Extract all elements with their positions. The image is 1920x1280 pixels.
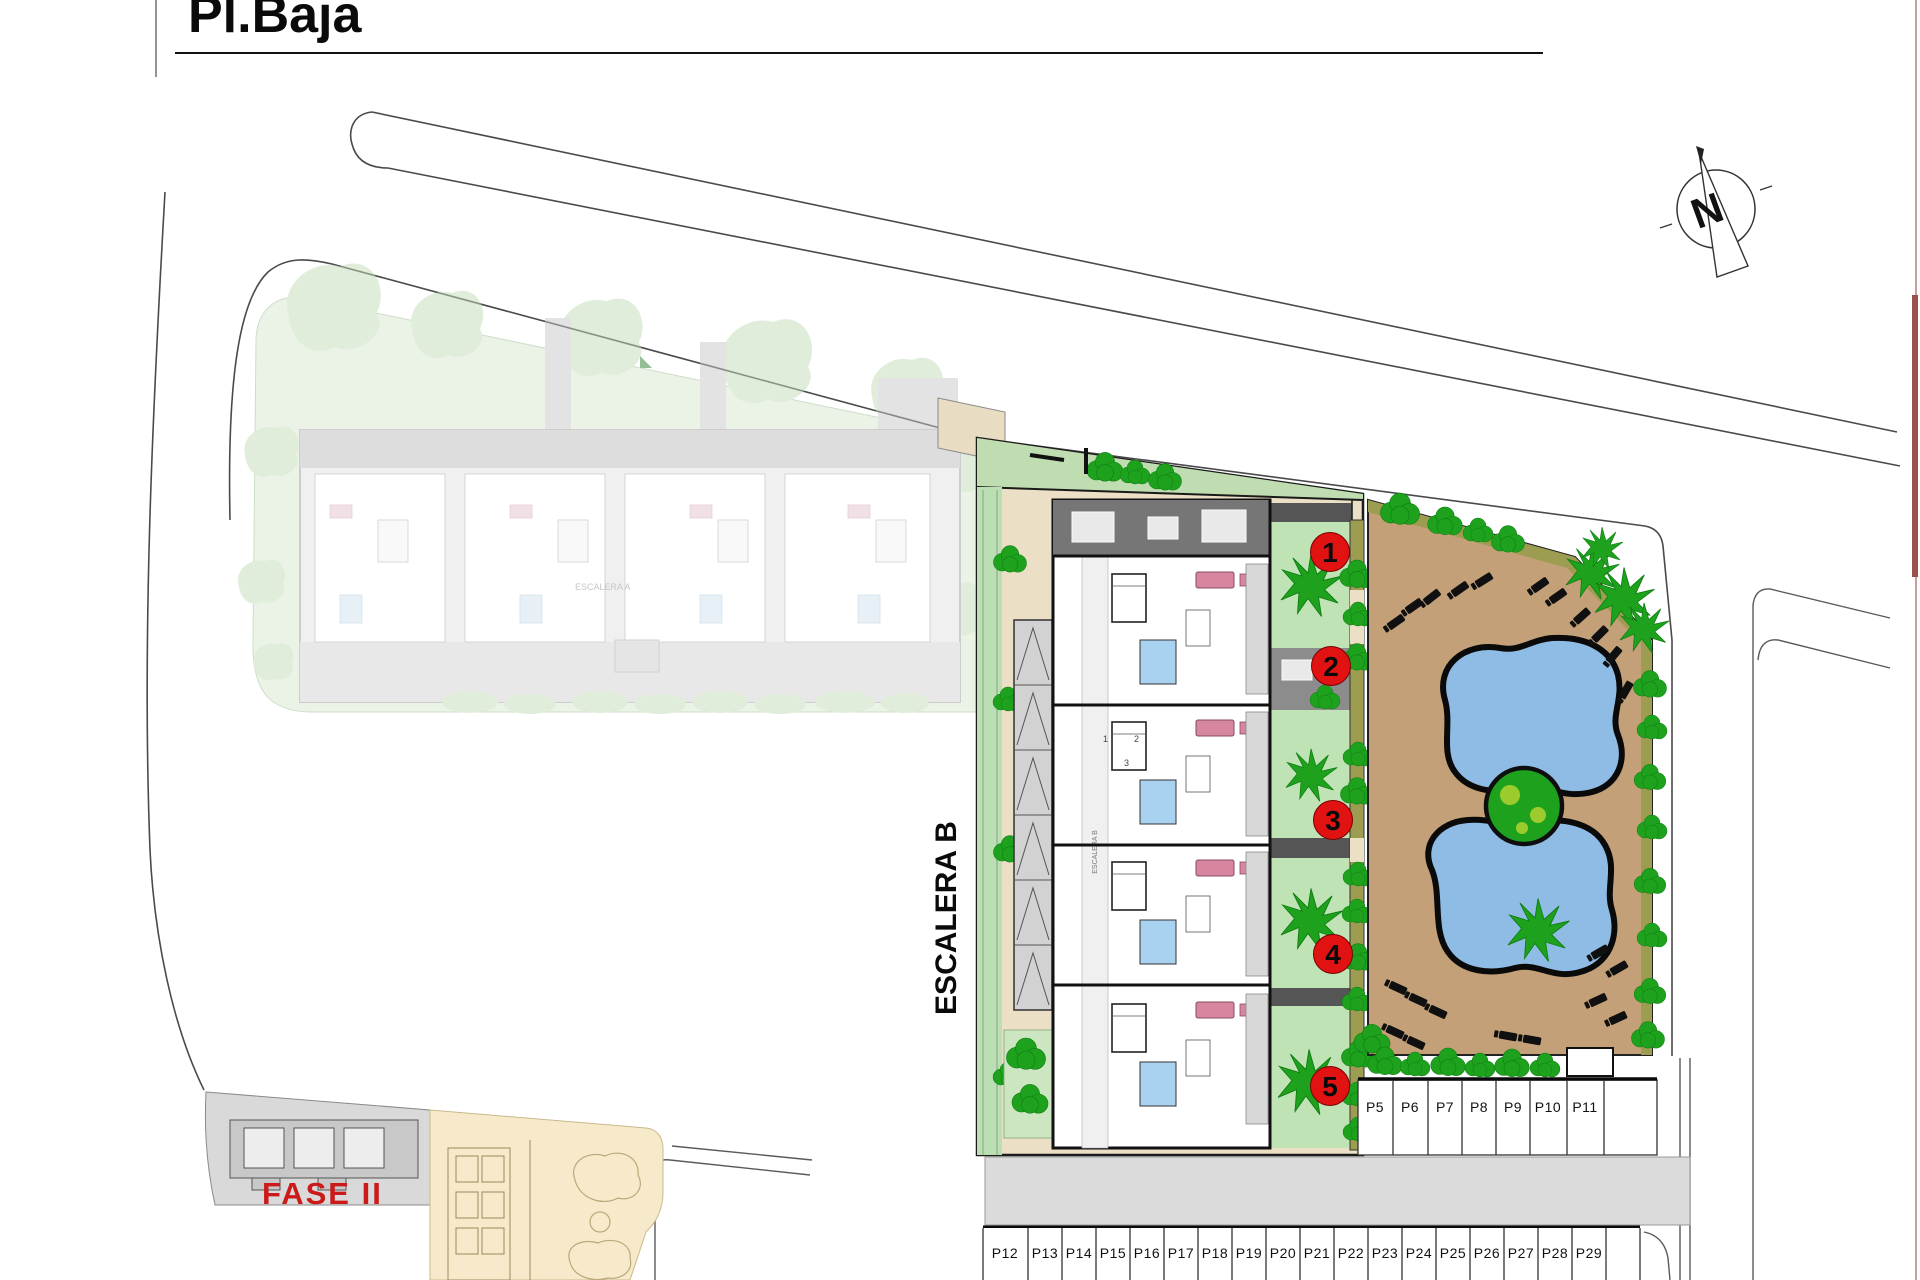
- bathroom: [1140, 920, 1176, 964]
- sofa: [1196, 720, 1234, 736]
- svg-text:1: 1: [1322, 537, 1338, 568]
- parking-spot-label: P23: [1372, 1245, 1398, 1261]
- unit-number: 3: [1124, 758, 1129, 768]
- parking-spot-label: P18: [1202, 1245, 1228, 1261]
- unit-marker-5: 5: [1311, 1067, 1350, 1106]
- parking-end-curb: [1644, 1232, 1670, 1280]
- street-corner-curb-1: [1753, 589, 1890, 1280]
- building-escalera-b: ESCALERA B: [1014, 500, 1352, 1148]
- unit-number: 1: [1103, 734, 1108, 744]
- svg-text:3: 3: [1325, 805, 1341, 836]
- west-green-strip: [977, 487, 1002, 1155]
- parking-spot-label: P25: [1440, 1245, 1466, 1261]
- pool-island-tree: [1486, 768, 1562, 844]
- parking-spot-label: P7: [1436, 1099, 1454, 1115]
- sofa: [1196, 1002, 1234, 1018]
- bathroom: [1140, 1062, 1176, 1106]
- parking-spot-label: P5: [1366, 1099, 1384, 1115]
- key-plan: FASE II: [205, 1092, 663, 1280]
- unit-number: 2: [1134, 734, 1139, 744]
- terrace: [1246, 564, 1268, 694]
- parking-spot-label: P9: [1504, 1099, 1522, 1115]
- access-road: [985, 1157, 1690, 1225]
- parking-spot-label: P11: [1572, 1099, 1597, 1115]
- unit-marker-1: 1: [1311, 533, 1350, 572]
- parking-spot-label: P19: [1236, 1245, 1262, 1261]
- parking-spot-label: P26: [1474, 1245, 1500, 1261]
- sofa: [1196, 572, 1234, 588]
- bathroom: [1140, 780, 1176, 824]
- parking-spot-label: P12: [992, 1245, 1018, 1261]
- parking-spot-label: P10: [1535, 1099, 1561, 1115]
- svg-text:5: 5: [1322, 1071, 1338, 1102]
- parking-spot-label: P28: [1542, 1245, 1568, 1261]
- parking-spot-label: P20: [1270, 1245, 1296, 1261]
- parking-spot-label: P24: [1406, 1245, 1432, 1261]
- parking-spot-label: P13: [1032, 1245, 1058, 1261]
- terrace: [1246, 994, 1268, 1124]
- terrace: [1246, 712, 1268, 836]
- parking-spot-label: P8: [1470, 1099, 1488, 1115]
- faded-building: ESCALERA A: [300, 430, 960, 702]
- sofa: [1196, 860, 1234, 876]
- phase-label: FASE II: [262, 1176, 383, 1211]
- south-street-curb-2: [672, 1146, 812, 1160]
- unit-marker-4: 4: [1314, 935, 1353, 974]
- parking-row-upper: P5 P6 P7 P8 P9 P10 P11: [1358, 1079, 1657, 1155]
- compass-north-letter: N: [1685, 183, 1730, 238]
- site-plan-canvas: Pl.Baja: [0, 0, 1920, 1280]
- pool-house: [1567, 1048, 1613, 1076]
- unit-marker-3: 3: [1314, 801, 1353, 840]
- faded-marker-triangle: [640, 356, 652, 368]
- parking-spot-label: P22: [1338, 1245, 1364, 1261]
- faded-driveway: [545, 318, 571, 430]
- terrace: [1246, 852, 1268, 976]
- parking-spot-label: P17: [1168, 1245, 1194, 1261]
- parking-row-lower: P12 P13 P14 P15 P16 P17 P18 P19 P20 P21 …: [983, 1227, 1670, 1280]
- page-title-block: Pl.Baja: [156, 0, 1543, 77]
- bathroom: [1140, 640, 1176, 684]
- faded-escalera-a-site: ESCALERA A: [238, 264, 985, 714]
- street-corner-curb-2: [1758, 640, 1890, 668]
- corridor-label: ESCALERA B: [1092, 830, 1099, 874]
- svg-text:2: 2: [1323, 651, 1339, 682]
- parking-spot-label: P21: [1304, 1245, 1330, 1261]
- svg-text:4: 4: [1325, 939, 1341, 970]
- page-title: Pl.Baja: [188, 0, 362, 44]
- parking-spot-label: P14: [1066, 1245, 1092, 1261]
- west-boundary-line: [147, 192, 204, 1090]
- parking-spot-label: P6: [1401, 1099, 1419, 1115]
- pool-deck: [1354, 493, 1669, 1077]
- escalera-b-label: ESCALERA B: [930, 821, 963, 1015]
- unit-marker-2: 2: [1312, 647, 1351, 686]
- faded-building-label: ESCALERA A: [575, 582, 631, 592]
- north-compass: N: [1660, 146, 1772, 277]
- parking-spot-label: P16: [1134, 1245, 1160, 1261]
- parking-spot-label: P15: [1100, 1245, 1126, 1261]
- faded-driveway: [700, 342, 726, 430]
- parking-spot-label: P29: [1576, 1245, 1602, 1261]
- parking-spot-label: P27: [1508, 1245, 1534, 1261]
- right-frame-edge: [1912, 0, 1918, 1280]
- south-street-curb-1: [655, 1160, 810, 1280]
